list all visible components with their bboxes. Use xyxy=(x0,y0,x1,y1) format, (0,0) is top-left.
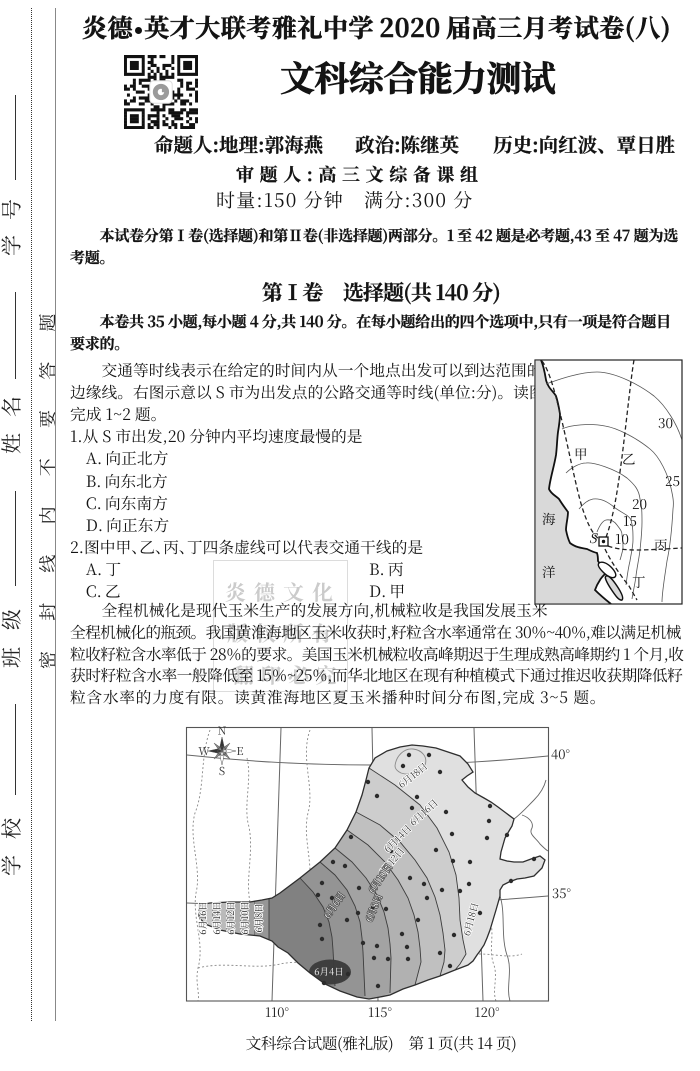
svg-text:甲: 甲 xyxy=(574,443,588,463)
svg-text:25: 25 xyxy=(665,470,680,490)
svg-text:115°: 115° xyxy=(368,1002,392,1021)
svg-text:35°: 35° xyxy=(552,883,571,902)
svg-text:S: S xyxy=(219,763,225,779)
svg-text:6月12日: 6月12日 xyxy=(223,901,237,934)
svg-text:6月10日: 6月10日 xyxy=(237,901,251,934)
svg-text:乙: 乙 xyxy=(622,448,636,468)
svg-text:10: 10 xyxy=(615,528,629,548)
svg-text:40°: 40° xyxy=(551,744,570,763)
svg-text:洋: 洋 xyxy=(542,561,556,581)
svg-text:丙: 丙 xyxy=(654,534,668,554)
svg-text:丁: 丁 xyxy=(632,571,646,591)
svg-text:S: S xyxy=(589,527,598,547)
svg-text:E: E xyxy=(236,743,243,759)
svg-text:6月14日: 6月14日 xyxy=(209,901,223,934)
svg-text:N: N xyxy=(218,723,227,739)
svg-text:6月16日: 6月16日 xyxy=(195,901,209,934)
svg-text:30: 30 xyxy=(658,412,673,432)
svg-text:120°: 120° xyxy=(474,1002,499,1021)
svg-text:110°: 110° xyxy=(265,1002,289,1021)
svg-text:海: 海 xyxy=(542,508,556,528)
svg-text:W: W xyxy=(198,743,210,759)
svg-text:6月4日: 6月4日 xyxy=(314,964,344,978)
svg-text:6月8日: 6月8日 xyxy=(251,904,265,933)
svg-text:15: 15 xyxy=(623,510,637,530)
